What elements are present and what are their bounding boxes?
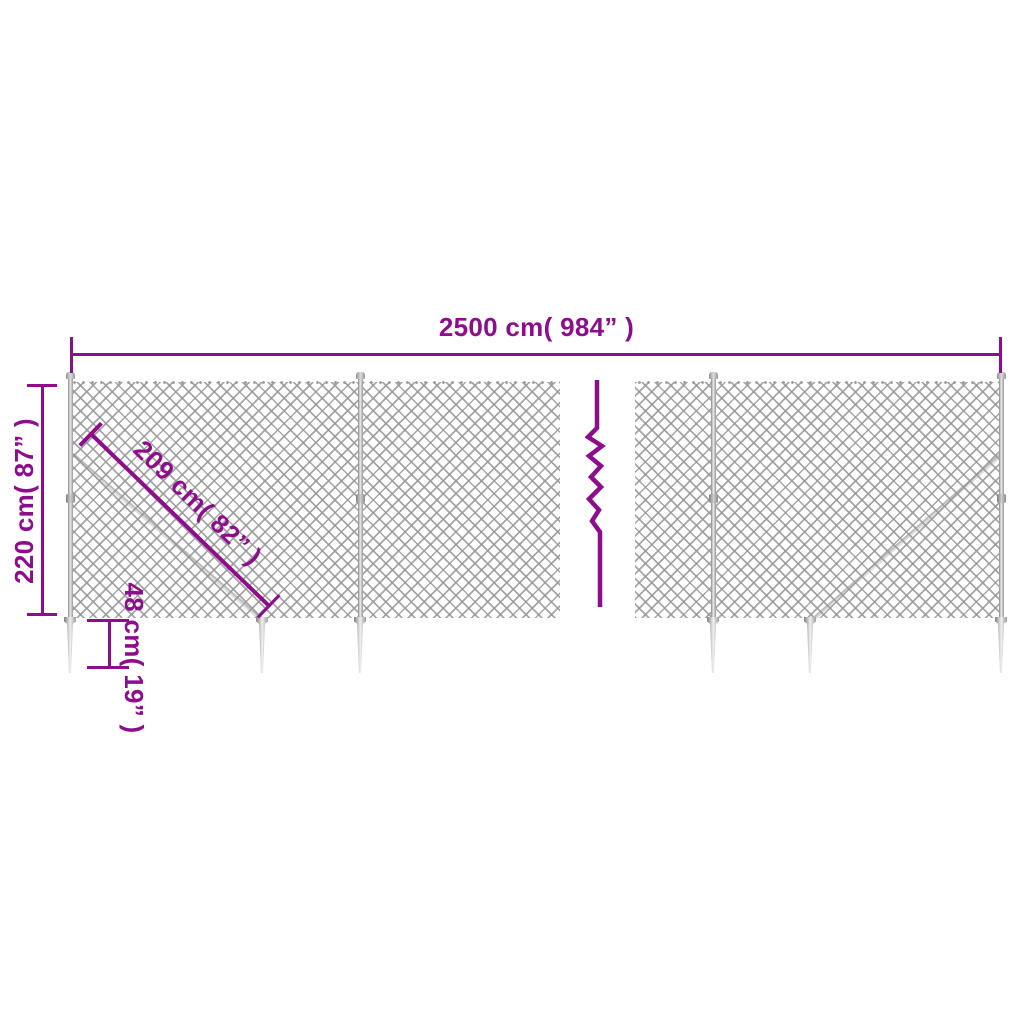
- height-dimension-cap-bottom: [27, 613, 57, 616]
- fence-post-cap: [66, 372, 75, 379]
- width-dimension-label: 2500 cm( 984” ): [72, 312, 1001, 342]
- anchor-dimension-cap-top: [87, 619, 129, 622]
- fence-post-cap: [709, 372, 718, 379]
- height-dimension-line: [41, 385, 44, 616]
- width-dimension-cap-right: [999, 337, 1002, 373]
- spike-anchor: [995, 617, 1008, 673]
- anchor-dimension-label: 48 cm( 19” ): [119, 573, 149, 743]
- fence-post-connector: [356, 494, 365, 503]
- fence-post-connector: [66, 494, 75, 503]
- anchor-dimension-line: [108, 620, 111, 667]
- fence-post-connector: [997, 494, 1006, 503]
- fence-post-cap: [997, 372, 1006, 379]
- height-dimension-label: 220 cm( 87” ): [9, 371, 39, 631]
- fence-post-connector: [709, 494, 718, 503]
- zigzag-break-icon: [585, 378, 607, 610]
- fence-post-cap: [356, 372, 365, 379]
- spike-anchor: [354, 617, 367, 673]
- fence-dimension-diagram: 2500 cm( 984” ) 220 cm( 87” ) 209 cm( 82…: [0, 0, 1024, 1024]
- spike-anchor: [64, 617, 77, 673]
- spike-anchor: [804, 617, 817, 673]
- anchor-dimension-cap-bottom: [87, 666, 129, 669]
- spike-anchor: [707, 617, 720, 673]
- fence-mesh-right-section: [635, 382, 1003, 618]
- width-dimension-cap-left: [70, 337, 73, 373]
- height-dimension-cap-top: [27, 384, 57, 387]
- width-dimension-line: [70, 353, 1001, 356]
- spike-anchor: [256, 617, 269, 673]
